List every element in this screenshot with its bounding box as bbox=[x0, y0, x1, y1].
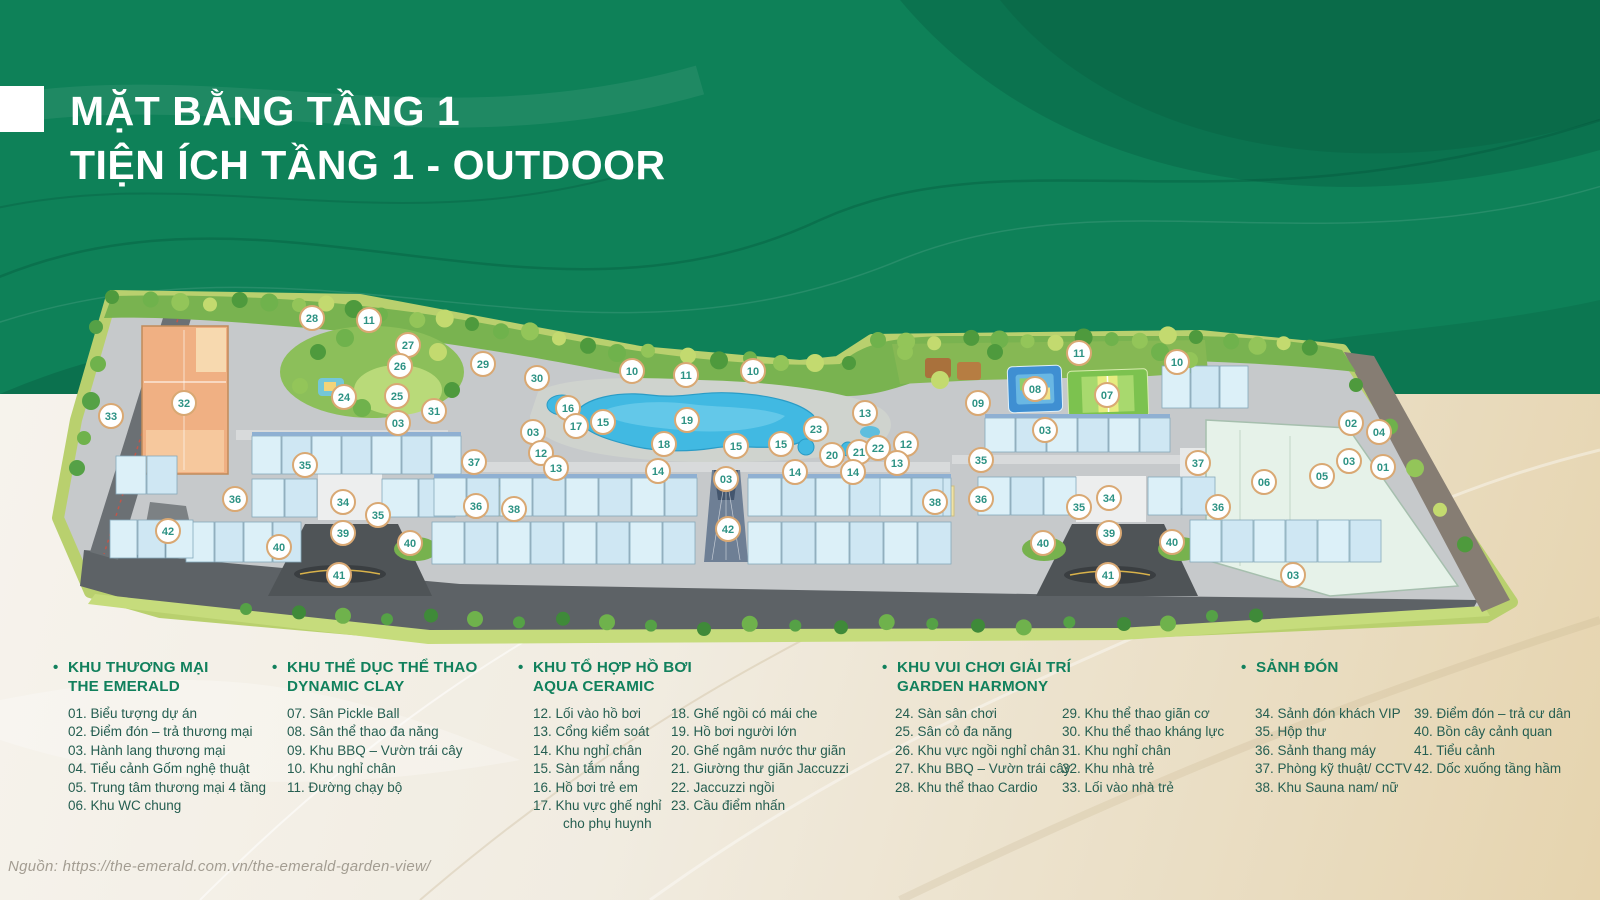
plan-marker-23: 23 bbox=[804, 417, 828, 441]
legend-item: 03. Hành lang thương mại bbox=[68, 742, 266, 760]
plan-marker-14: 14 bbox=[841, 460, 865, 484]
tree-icon bbox=[1105, 332, 1119, 346]
shophouse-unit bbox=[918, 522, 951, 564]
shophouse-unit bbox=[252, 436, 281, 474]
tree-icon bbox=[773, 355, 789, 371]
shophouse-unit bbox=[1109, 418, 1139, 452]
tree-icon bbox=[879, 614, 895, 630]
pergola bbox=[957, 362, 981, 380]
plan-marker-29: 29 bbox=[471, 352, 495, 376]
legend-bullet-icon: • bbox=[1241, 659, 1246, 676]
tree-icon bbox=[1132, 333, 1148, 349]
legend-column: 29. Khu thể thao giãn cơ30. Khu thể thao… bbox=[1062, 705, 1224, 797]
legend-item: cho phụ huynh bbox=[533, 815, 661, 833]
tree-icon bbox=[429, 343, 447, 361]
canopy-strip bbox=[252, 432, 461, 436]
tree-icon bbox=[143, 292, 159, 308]
svg-text:15: 15 bbox=[597, 417, 609, 429]
svg-text:15: 15 bbox=[730, 441, 742, 453]
svg-text:11: 11 bbox=[1073, 348, 1085, 360]
shophouse-unit bbox=[850, 522, 883, 564]
tree-icon bbox=[1457, 536, 1473, 552]
tree-icon bbox=[834, 620, 848, 634]
tree-icon bbox=[556, 612, 570, 626]
svg-text:03: 03 bbox=[1287, 570, 1299, 582]
plan-marker-04: 04 bbox=[1367, 420, 1391, 444]
svg-text:26: 26 bbox=[394, 361, 406, 373]
svg-text:40: 40 bbox=[273, 542, 285, 554]
plan-marker-06: 06 bbox=[1252, 470, 1276, 494]
plan-marker-15: 15 bbox=[724, 434, 748, 458]
legend-item: 31. Khu nghỉ chân bbox=[1062, 742, 1224, 760]
svg-text:23: 23 bbox=[810, 424, 822, 436]
tree-icon bbox=[465, 317, 479, 331]
svg-text:02: 02 bbox=[1345, 418, 1357, 430]
legend-column: 07. Sân Pickle Ball08. Sân thể thao đa n… bbox=[287, 705, 462, 797]
plan-marker-41: 41 bbox=[327, 563, 351, 587]
tree-icon bbox=[1433, 503, 1447, 517]
legend-item: 36. Sảnh thang máy bbox=[1255, 742, 1412, 760]
plan-marker-36: 36 bbox=[1206, 495, 1230, 519]
shophouse-unit bbox=[1222, 520, 1253, 562]
legend-item: 27. Khu BBQ – Vườn trái cây bbox=[895, 760, 1070, 778]
svg-text:33: 33 bbox=[105, 411, 117, 423]
legend-item: 05. Trung tâm thương mại 4 tầng bbox=[68, 779, 266, 797]
plan-marker-11: 11 bbox=[1067, 341, 1091, 365]
svg-text:22: 22 bbox=[872, 443, 884, 455]
svg-text:03: 03 bbox=[1039, 425, 1051, 437]
svg-text:38: 38 bbox=[508, 504, 520, 516]
tree-icon bbox=[971, 619, 985, 633]
tree-icon bbox=[436, 310, 454, 328]
tree-icon bbox=[424, 609, 438, 623]
svg-text:10: 10 bbox=[747, 366, 759, 378]
tree-icon bbox=[870, 332, 886, 348]
legend-column: 34. Sảnh đón khách VIP35. Hộp thư36. Sản… bbox=[1255, 705, 1412, 797]
svg-text:19: 19 bbox=[681, 415, 693, 427]
tree-icon bbox=[521, 322, 539, 340]
plan-marker-11: 11 bbox=[357, 308, 381, 332]
svg-text:35: 35 bbox=[372, 510, 384, 522]
tree-icon bbox=[1063, 616, 1075, 628]
tree-icon bbox=[1406, 459, 1424, 477]
shophouse-unit bbox=[215, 522, 243, 562]
plan-marker-10: 10 bbox=[620, 359, 644, 383]
plan-marker-35: 35 bbox=[366, 503, 390, 527]
legend-item: 41. Tiểu cảnh bbox=[1414, 742, 1571, 760]
legend-item: 07. Sân Pickle Ball bbox=[287, 705, 462, 723]
legend-item: 09. Khu BBQ – Vườn trái cây bbox=[287, 742, 462, 760]
svg-text:15: 15 bbox=[775, 439, 787, 451]
tree-icon bbox=[409, 312, 425, 328]
plan-marker-40: 40 bbox=[267, 535, 291, 559]
shophouse-unit bbox=[1140, 418, 1170, 452]
shophouse-unit bbox=[564, 522, 596, 564]
legend-group-title: KHU TỔ HỢP HỒ BƠIAQUA CERAMIC bbox=[533, 658, 692, 696]
tree-icon bbox=[171, 293, 189, 311]
plan-marker-35: 35 bbox=[969, 448, 993, 472]
legend-item: 19. Hồ bơi người lớn bbox=[671, 723, 849, 741]
tree-icon bbox=[789, 620, 801, 632]
tree-icon bbox=[1160, 616, 1176, 632]
legend-column: 39. Điểm đón – trả cư dân40. Bồn cây cản… bbox=[1414, 705, 1571, 779]
plan-marker-20: 20 bbox=[820, 443, 844, 467]
plan-marker-31: 31 bbox=[422, 399, 446, 423]
legend-group-title: KHU VUI CHƠI GIẢI TRÍGARDEN HARMONY bbox=[897, 658, 1071, 696]
tree-icon bbox=[1223, 333, 1239, 349]
svg-text:03: 03 bbox=[392, 418, 404, 430]
tree-icon bbox=[1302, 340, 1318, 356]
svg-text:41: 41 bbox=[1102, 570, 1114, 582]
svg-text:36: 36 bbox=[229, 494, 241, 506]
tree-icon bbox=[292, 605, 306, 619]
tree-icon bbox=[1189, 330, 1203, 344]
tree-icon bbox=[963, 330, 979, 346]
tree-icon bbox=[806, 354, 824, 372]
shophouse-unit bbox=[372, 436, 401, 474]
legend-column: 01. Biểu tượng dự án02. Điểm đón – trả t… bbox=[68, 705, 266, 815]
legend-item: 11. Đường chạy bộ bbox=[287, 779, 462, 797]
plan-marker-40: 40 bbox=[1031, 531, 1055, 555]
svg-text:11: 11 bbox=[680, 370, 692, 382]
plan-marker-42: 42 bbox=[156, 519, 180, 543]
shophouse-unit bbox=[665, 478, 697, 516]
legend-item: 18. Ghế ngồi có mái che bbox=[671, 705, 849, 723]
plan-marker-07: 07 bbox=[1095, 383, 1119, 407]
tree-icon bbox=[927, 336, 941, 350]
svg-text:14: 14 bbox=[652, 466, 665, 478]
plan-marker-17: 17 bbox=[564, 414, 588, 438]
plan-marker-36: 36 bbox=[223, 487, 247, 511]
svg-text:13: 13 bbox=[859, 408, 871, 420]
svg-text:24: 24 bbox=[338, 392, 351, 404]
tree-icon bbox=[641, 344, 655, 358]
legend-item: 20. Ghế ngâm nước thư giãn bbox=[671, 742, 849, 760]
svg-text:03: 03 bbox=[1343, 456, 1355, 468]
shophouse-unit bbox=[1190, 520, 1221, 562]
plan-marker-14: 14 bbox=[646, 459, 670, 483]
plan-marker-33: 33 bbox=[99, 404, 123, 428]
plan-marker-40: 40 bbox=[1160, 530, 1184, 554]
tree-icon bbox=[1349, 378, 1363, 392]
legend-item: 25. Sân cỏ đa năng bbox=[895, 723, 1070, 741]
legend-column: 12. Lối vào hồ bơi13. Cổng kiểm soát14. … bbox=[533, 705, 661, 834]
svg-text:30: 30 bbox=[531, 373, 543, 385]
svg-text:35: 35 bbox=[299, 460, 311, 472]
legend-item: 01. Biểu tượng dự án bbox=[68, 705, 266, 723]
svg-text:07: 07 bbox=[1101, 390, 1113, 402]
shophouse-unit bbox=[1254, 520, 1285, 562]
shophouse-unit bbox=[110, 520, 137, 558]
tree-icon bbox=[1206, 610, 1218, 622]
legend-item: 13. Cổng kiểm soát bbox=[533, 723, 661, 741]
svg-text:12: 12 bbox=[535, 448, 547, 460]
svg-text:10: 10 bbox=[626, 366, 638, 378]
svg-text:14: 14 bbox=[789, 467, 802, 479]
svg-text:42: 42 bbox=[162, 526, 174, 538]
legend-item: 22. Jaccuzzi ngồi bbox=[671, 779, 849, 797]
legend-bullet-icon: • bbox=[272, 659, 277, 676]
plan-marker-19: 19 bbox=[675, 408, 699, 432]
tree-icon bbox=[444, 382, 460, 398]
shophouse-unit bbox=[434, 478, 466, 516]
svg-text:41: 41 bbox=[333, 570, 345, 582]
svg-text:36: 36 bbox=[975, 494, 987, 506]
shophouse-unit bbox=[1011, 477, 1043, 515]
tree-icon bbox=[897, 344, 913, 360]
svg-text:34: 34 bbox=[337, 497, 350, 509]
svg-text:40: 40 bbox=[404, 538, 416, 550]
legend-item: 29. Khu thể thao giãn cơ bbox=[1062, 705, 1224, 723]
tree-icon bbox=[232, 292, 248, 308]
plan-marker-02: 02 bbox=[1339, 411, 1363, 435]
legend-item: 23. Cầu điểm nhấn bbox=[671, 797, 849, 815]
tree-icon bbox=[260, 294, 278, 312]
legend-item: 06. Khu WC chung bbox=[68, 797, 266, 815]
svg-text:06: 06 bbox=[1258, 477, 1270, 489]
tree-icon bbox=[710, 351, 728, 369]
shophouse-unit bbox=[116, 456, 146, 494]
tree-icon bbox=[697, 622, 711, 636]
svg-text:42: 42 bbox=[722, 524, 734, 536]
plan-marker-13: 13 bbox=[544, 456, 568, 480]
svg-text:10: 10 bbox=[1171, 357, 1183, 369]
plan-marker-36: 36 bbox=[464, 494, 488, 518]
svg-text:05: 05 bbox=[1316, 471, 1328, 483]
shophouse-unit bbox=[816, 478, 849, 516]
legend-item: 34. Sảnh đón khách VIP bbox=[1255, 705, 1412, 723]
legend-item: 32. Khu nhà trẻ bbox=[1062, 760, 1224, 778]
svg-text:20: 20 bbox=[826, 450, 838, 462]
legend-item: 30. Khu thể thao kháng lực bbox=[1062, 723, 1224, 741]
tree-icon bbox=[1016, 619, 1032, 635]
shophouse-unit bbox=[1191, 366, 1219, 408]
plan-marker-03: 03 bbox=[1337, 449, 1361, 473]
shophouse-unit bbox=[147, 456, 177, 494]
tree-icon bbox=[1159, 326, 1177, 344]
shophouse-unit bbox=[566, 478, 598, 516]
shophouse-unit bbox=[1148, 477, 1181, 515]
legend-item: 40. Bồn cây cảnh quan bbox=[1414, 723, 1571, 741]
svg-text:03: 03 bbox=[720, 474, 732, 486]
plan-marker-42: 42 bbox=[716, 517, 740, 541]
tree-icon bbox=[203, 298, 217, 312]
legend-item: 26. Khu vực ngồi nghỉ chân bbox=[895, 742, 1070, 760]
plan-marker-37: 37 bbox=[1186, 451, 1210, 475]
plan-marker-10: 10 bbox=[1165, 350, 1189, 374]
shophouse-unit bbox=[402, 436, 431, 474]
plan-marker-03: 03 bbox=[1281, 563, 1305, 587]
slide: MẶT BẰNG TẦNG 1 TIỆN ÍCH TẦNG 1 - OUTDOO… bbox=[0, 0, 1600, 900]
legend-item: 42. Dốc xuống tầng hầm bbox=[1414, 760, 1571, 778]
svg-text:31: 31 bbox=[428, 406, 440, 418]
plan-marker-14: 14 bbox=[783, 460, 807, 484]
legend-group-title: KHU THƯƠNG MẠITHE EMERALD bbox=[68, 658, 209, 696]
plan-marker-05: 05 bbox=[1310, 464, 1334, 488]
tree-icon bbox=[931, 371, 949, 389]
shophouse-unit bbox=[432, 522, 464, 564]
tree-icon bbox=[1021, 334, 1035, 348]
plan-marker-13: 13 bbox=[885, 451, 909, 475]
legend-column: 18. Ghế ngồi có mái che19. Hồ bơi người … bbox=[671, 705, 849, 815]
plan-marker-37: 37 bbox=[462, 450, 486, 474]
tree-icon bbox=[513, 616, 525, 628]
tree-icon bbox=[467, 611, 483, 627]
plan-marker-41: 41 bbox=[1096, 563, 1120, 587]
tree-icon bbox=[292, 378, 308, 394]
shophouse-unit bbox=[630, 522, 662, 564]
svg-text:13: 13 bbox=[891, 458, 903, 470]
tree-icon bbox=[90, 356, 106, 372]
plan-marker-39: 39 bbox=[331, 521, 355, 545]
plan-marker-03: 03 bbox=[714, 467, 738, 491]
plan-marker-28: 28 bbox=[300, 306, 324, 330]
legend-item: 21. Giường thư giãn Jaccuzzi bbox=[671, 760, 849, 778]
tree-icon bbox=[580, 338, 596, 354]
canopy-strip bbox=[985, 414, 1170, 418]
svg-text:39: 39 bbox=[337, 528, 349, 540]
tree-icon bbox=[1277, 336, 1291, 350]
tree-icon bbox=[1249, 609, 1263, 623]
svg-text:11: 11 bbox=[363, 315, 375, 327]
plan-marker-38: 38 bbox=[923, 490, 947, 514]
tree-icon bbox=[608, 344, 626, 362]
shophouse-unit bbox=[599, 478, 631, 516]
shophouse-unit bbox=[748, 478, 781, 516]
shophouse-unit bbox=[880, 478, 911, 516]
svg-text:04: 04 bbox=[1373, 427, 1386, 439]
tree-icon bbox=[105, 290, 119, 304]
plan-marker-08: 08 bbox=[1023, 377, 1047, 401]
tree-icon bbox=[599, 614, 615, 630]
legend-item: 28. Khu thể thao Cardio bbox=[895, 779, 1070, 797]
plan-marker-15: 15 bbox=[769, 432, 793, 456]
svg-text:03: 03 bbox=[527, 427, 539, 439]
svg-text:01: 01 bbox=[1377, 462, 1389, 474]
tree-icon bbox=[336, 329, 354, 347]
plan-marker-11: 11 bbox=[674, 363, 698, 387]
svg-text:29: 29 bbox=[477, 359, 489, 371]
svg-text:18: 18 bbox=[658, 439, 670, 451]
plan-marker-40: 40 bbox=[398, 531, 422, 555]
tree-icon bbox=[742, 616, 758, 632]
plan-marker-10: 10 bbox=[741, 359, 765, 383]
svg-text:12: 12 bbox=[900, 439, 912, 451]
legend-bullet-icon: • bbox=[53, 659, 58, 676]
plan-marker-13: 13 bbox=[853, 401, 877, 425]
plan-marker-09: 09 bbox=[966, 391, 990, 415]
shophouse-unit bbox=[782, 522, 815, 564]
legend-item: 38. Khu Sauna nam/ nữ bbox=[1255, 779, 1412, 797]
shophouse-unit bbox=[531, 522, 563, 564]
tree-icon bbox=[1117, 617, 1131, 631]
svg-text:36: 36 bbox=[470, 501, 482, 513]
legend-item: 39. Điểm đón – trả cư dân bbox=[1414, 705, 1571, 723]
plan-marker-01: 01 bbox=[1371, 455, 1395, 479]
tree-icon bbox=[842, 356, 856, 370]
plan-marker-03: 03 bbox=[386, 411, 410, 435]
tree-icon bbox=[926, 618, 938, 630]
svg-text:32: 32 bbox=[178, 398, 190, 410]
svg-text:14: 14 bbox=[847, 467, 860, 479]
svg-text:39: 39 bbox=[1103, 528, 1115, 540]
shophouse-unit bbox=[884, 522, 917, 564]
tree-icon bbox=[240, 603, 252, 615]
svg-text:35: 35 bbox=[975, 455, 987, 467]
tree-icon bbox=[82, 392, 100, 410]
legend-group-title: SẢNH ĐÓN bbox=[1256, 658, 1339, 677]
legend-item: 35. Hộp thư bbox=[1255, 723, 1412, 741]
legend-column: 24. Sàn sân chơi25. Sân cỏ đa năng26. Kh… bbox=[895, 705, 1070, 797]
legend-item: 33. Lối vào nhà trẻ bbox=[1062, 779, 1224, 797]
svg-text:36: 36 bbox=[1212, 502, 1224, 514]
tree-icon bbox=[493, 323, 509, 339]
shophouse-unit bbox=[748, 522, 781, 564]
svg-text:27: 27 bbox=[402, 340, 414, 352]
svg-text:38: 38 bbox=[929, 497, 941, 509]
svg-text:21: 21 bbox=[853, 447, 865, 459]
shophouse-unit bbox=[432, 436, 461, 474]
svg-text:16: 16 bbox=[562, 403, 574, 415]
legend-item: 15. Sàn tắm nắng bbox=[533, 760, 661, 778]
shophouse-unit bbox=[816, 522, 849, 564]
shophouse-unit bbox=[465, 522, 497, 564]
shophouse-unit bbox=[597, 522, 629, 564]
legend-item: 10. Khu nghỉ chân bbox=[287, 760, 462, 778]
plan-marker-18: 18 bbox=[652, 432, 676, 456]
plan-marker-32: 32 bbox=[172, 391, 196, 415]
plan-marker-34: 34 bbox=[1097, 486, 1121, 510]
tree-icon bbox=[69, 460, 85, 476]
plan-marker-30: 30 bbox=[525, 366, 549, 390]
tree-icon bbox=[77, 431, 91, 445]
legend-item: 02. Điểm đón – trả thương mại bbox=[68, 723, 266, 741]
legend-item: 17. Khu vực ghế nghỉ bbox=[533, 797, 661, 815]
tree-icon bbox=[1248, 337, 1266, 355]
plan-marker-24: 24 bbox=[332, 385, 356, 409]
svg-text:25: 25 bbox=[391, 391, 403, 403]
tree-icon bbox=[310, 344, 326, 360]
jacuzzi bbox=[798, 439, 814, 455]
plan-marker-39: 39 bbox=[1097, 521, 1121, 545]
tree-icon bbox=[680, 348, 696, 364]
svg-text:37: 37 bbox=[1192, 458, 1204, 470]
legend-bullet-icon: • bbox=[518, 659, 523, 676]
tree-icon bbox=[89, 320, 103, 334]
shophouse-unit bbox=[1318, 520, 1349, 562]
plan-marker-35: 35 bbox=[1067, 495, 1091, 519]
shophouse-unit bbox=[1078, 418, 1108, 452]
legend-bullet-icon: • bbox=[882, 659, 887, 676]
shophouse-unit bbox=[252, 479, 284, 517]
plan-marker-36: 36 bbox=[969, 487, 993, 511]
tree-icon bbox=[552, 332, 566, 346]
svg-text:37: 37 bbox=[468, 457, 480, 469]
svg-text:28: 28 bbox=[306, 313, 318, 325]
legend-item: 14. Khu nghỉ chân bbox=[533, 742, 661, 760]
legend-item: 37. Phòng kỹ thuật/ CCTV bbox=[1255, 760, 1412, 778]
plan-marker-03: 03 bbox=[1033, 418, 1057, 442]
legend-item: 08. Sân thể thao đa năng bbox=[287, 723, 462, 741]
svg-text:09: 09 bbox=[972, 398, 984, 410]
legend-item: 12. Lối vào hồ bơi bbox=[533, 705, 661, 723]
plan-marker-25: 25 bbox=[385, 384, 409, 408]
shophouse-unit bbox=[663, 522, 695, 564]
tree-icon bbox=[987, 344, 1003, 360]
legend-item: 16. Hồ bơi trẻ em bbox=[533, 779, 661, 797]
tree-icon bbox=[335, 608, 351, 624]
svg-text:13: 13 bbox=[550, 463, 562, 475]
